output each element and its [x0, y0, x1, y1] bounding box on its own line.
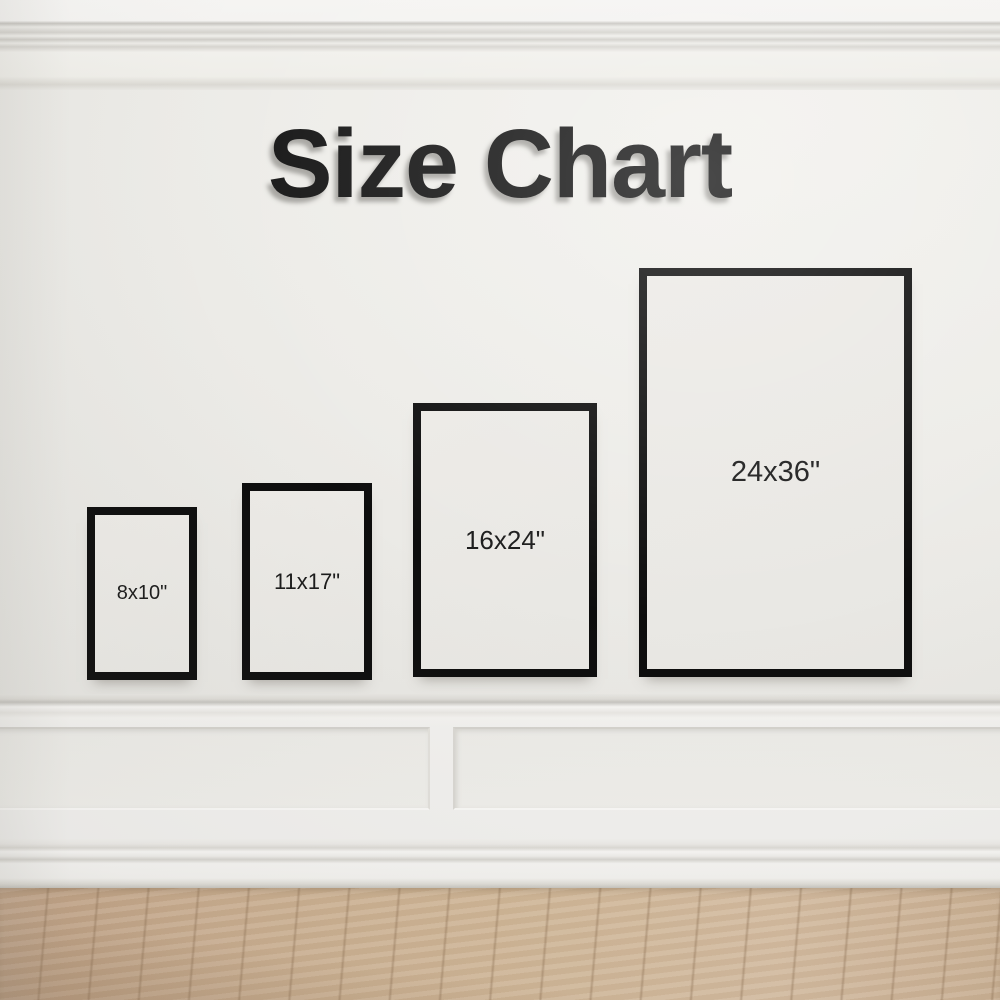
chair-rail-molding — [0, 694, 1000, 728]
wainscoting — [0, 694, 1000, 888]
room-mockup: Size Chart 8x10" 11x17" 16x24" 24x36" — [0, 0, 1000, 1000]
frame-size-label: 16x24" — [465, 525, 545, 556]
frame-11x17: 11x17" — [242, 483, 372, 680]
wainscot-panel-right — [453, 727, 1000, 810]
frame-24x36: 24x36" — [639, 268, 912, 677]
frame-size-label: 8x10" — [117, 582, 167, 605]
baseboard-molding — [0, 839, 1000, 888]
wood-floor — [0, 888, 1000, 1000]
crown-molding — [0, 0, 1000, 90]
frame-8x10: 8x10" — [87, 507, 197, 680]
wainscot-panel-left — [0, 727, 430, 810]
frame-size-label: 24x36" — [731, 456, 820, 489]
frame-size-label: 11x17" — [274, 569, 340, 595]
frame-16x24: 16x24" — [413, 403, 597, 677]
page-title: Size Chart — [0, 108, 1000, 220]
